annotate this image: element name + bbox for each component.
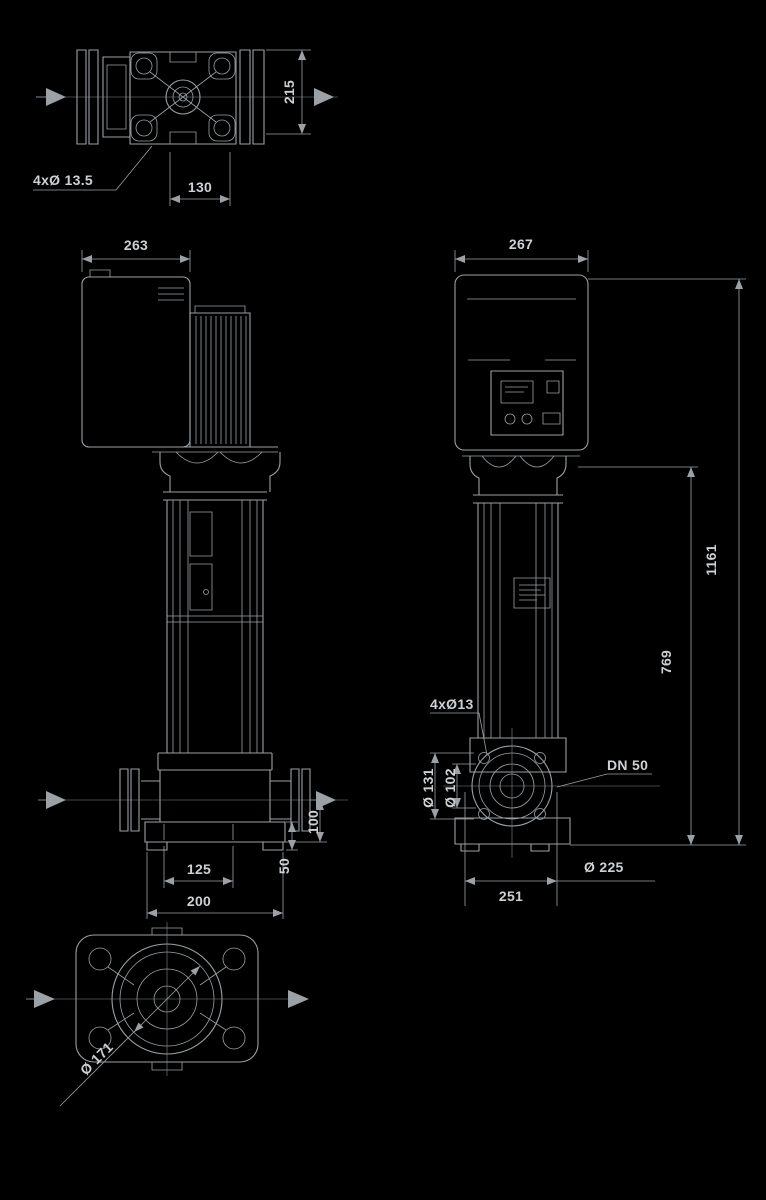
side-view-base-width-label: 200 <box>187 893 211 909</box>
top-view-bolt-holes-label: 4xØ 13.5 <box>33 172 93 188</box>
flow-direction-arrow-icon <box>288 990 309 1008</box>
front-view-pump-height-label: 769 <box>658 650 674 674</box>
side-view-base-height-label: 50 <box>276 858 292 874</box>
front-view-width-label: 267 <box>509 236 533 252</box>
front-view-base-width-label: 251 <box>499 888 523 904</box>
flow-direction-arrow-icon <box>36 88 66 106</box>
front-view-flange-inner-dia-label: Ø 102 <box>442 768 458 808</box>
front-view-flange-outer-dia-label: Ø 131 <box>420 768 436 808</box>
side-view-width-label: 263 <box>124 237 148 253</box>
top-view-depth-label: 215 <box>281 80 297 104</box>
side-view-foot-spacing-label: 125 <box>187 861 211 877</box>
technical-drawing-canvas: 215 130 4xØ 13.5 263 <box>0 0 766 1200</box>
pump-dimension-drawing: 215 130 4xØ 13.5 263 <box>0 0 766 1200</box>
front-view: 267 <box>420 236 746 906</box>
front-view-base-circle-dia-label: Ø 225 <box>584 859 624 875</box>
flow-direction-arrow-icon <box>26 990 55 1008</box>
front-view-flange-size-label: DN 50 <box>607 757 648 773</box>
front-view-total-height-label: 1161 <box>703 544 719 576</box>
top-view-width-label: 130 <box>188 179 212 195</box>
side-view: 263 <box>38 237 348 919</box>
flow-direction-arrow-icon <box>38 791 66 809</box>
flow-direction-arrow-icon <box>314 88 334 106</box>
front-view-bolt-holes-label: 4xØ13 <box>430 696 474 712</box>
bottom-view: Ø 171 <box>26 922 309 1106</box>
side-view-port-height-label: 100 <box>305 810 321 834</box>
top-view: 215 130 4xØ 13.5 <box>33 50 338 206</box>
